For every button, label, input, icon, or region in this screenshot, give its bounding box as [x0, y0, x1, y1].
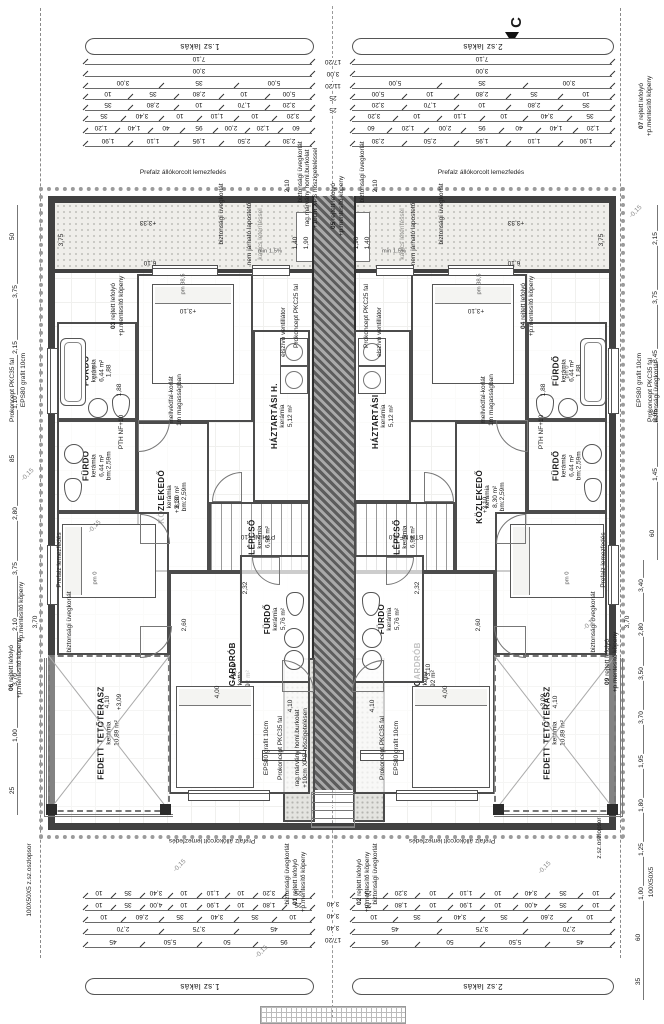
dimension-tick [610, 71, 616, 77]
banner-unit1-top-label: 1.sz lakás [180, 42, 220, 51]
dimension-value: 35 [123, 901, 132, 908]
annotation-6-10: 6,10 [508, 258, 521, 266]
washing-machine [358, 366, 386, 394]
dimension-value: 10 [494, 889, 503, 896]
dimension-line [85, 146, 312, 147]
dimension-tick [310, 116, 316, 122]
window [396, 790, 478, 801]
annotation-3-09: +3,09 [540, 694, 548, 710]
annotation-prefalz-ll-korcolt-lemezfed-: Prefalz állókorcolt lemezfedés [140, 169, 226, 177]
section-marker-c: C [508, 17, 525, 28]
annotation-min-1-5: min 1,5% [382, 249, 406, 256]
terrace-diagonals [494, 655, 616, 812]
dimension-value: 10 [477, 101, 486, 108]
window [188, 790, 270, 801]
dimension-line [352, 947, 612, 948]
note-03: 03 rejtett lefolyó +p.mentesítő köpeny [110, 276, 126, 337]
dimension-value: 10 [499, 112, 508, 119]
left-dimension-column-value: 3,75 [12, 562, 19, 577]
annotation-2-10: 2,10 [372, 180, 380, 193]
dimension-line [352, 910, 612, 911]
annotation-3-75: 3,75 [598, 234, 606, 247]
dimension-value: 95 [380, 938, 389, 945]
dimension-value: 35 [499, 913, 508, 920]
dimension-value: 3,20 [371, 101, 386, 108]
dimension-value: 2,80 [146, 101, 161, 108]
sink-icon [582, 444, 602, 464]
annotation-2-60: 2,60 [181, 619, 189, 632]
left-dimension-column-value: 1,00 [12, 728, 19, 743]
dimension-tick [310, 94, 316, 100]
annotation-1-90: 1,90 [303, 237, 311, 250]
annotation-2-32: 2,32 [242, 582, 250, 595]
dimension-value: 40 [161, 124, 170, 131]
bed [412, 686, 490, 788]
bed [432, 284, 514, 384]
annotation-prokoncept-pkc25-fal: Prokoncept PKC25 fal [363, 284, 371, 348]
dimension-center-value: 25 [328, 106, 337, 113]
dimension-value: 10 [494, 901, 503, 908]
dimension-value: 1,20 [400, 124, 415, 131]
dimension-value: 2,60 [134, 913, 149, 920]
dimension-value: 35 [175, 913, 184, 920]
pavement-strip [260, 1006, 406, 1024]
dimension-line [85, 88, 312, 89]
dimension-value: 35 [194, 79, 203, 86]
dimension-value: 45 [109, 938, 118, 945]
dimension-value: 3,40 [523, 889, 538, 896]
dimension-center-value: 17/20 [324, 58, 342, 65]
annotation-z-sz-oszlopsor: z.sz.oszlopsor [596, 817, 604, 858]
dimension-value: 95 [477, 124, 486, 131]
dimension-value: 3,40 [210, 913, 225, 920]
annotation-pm-38-5: pm 38,5 [477, 274, 484, 295]
banner-unit1-bottom-label: 1.sz lakás [180, 982, 220, 991]
dimension-value: 1,70 [237, 101, 252, 108]
dimension-value: 35 [148, 90, 157, 97]
dimension-value: 3,40 [149, 889, 164, 896]
note-09: 09 rejtett lefolyó +p.mentesítő köpeny [604, 632, 620, 693]
annotation-3-70: 3,70 [32, 616, 40, 629]
dimension-line [352, 76, 612, 77]
annotation-rag-m-rv-ny-homl-burkolat-10: rag.márvány homl.burkolat +10cm XPS hősz… [294, 708, 310, 788]
terrace-diagonals [48, 655, 170, 812]
dimension-value: 7,10 [191, 55, 206, 62]
sink-icon [88, 398, 108, 418]
dimension-value: 10 [288, 913, 297, 920]
annotation-pth-nf-10: PTH NF+10 [538, 415, 546, 450]
washing-machine [280, 366, 308, 394]
banner-unit2-bottom: 2.sz lakás [352, 978, 614, 995]
dimension-value: 3,20 [282, 101, 297, 108]
sink-icon [558, 398, 578, 418]
room-label: FÜRDŐkerámia6,44 m²bm:2,59m [551, 451, 583, 481]
dimension-value: 5,50 [507, 938, 522, 945]
annotation-eps80-grafit-10cm: EPS80 grafit 10cm [20, 353, 28, 407]
dimension-value: 35 [412, 913, 421, 920]
window [47, 348, 58, 414]
right-dimension-column-b-value: 35 [635, 977, 642, 986]
right-dimension-column-b-value: 2,80 [638, 622, 645, 637]
annotation-biztons-gi-vegkorl-t: biztonsági üvegkorlát [284, 843, 292, 904]
annotation-6-10: 6,10 [144, 258, 157, 266]
dimension-value: 10 [95, 901, 104, 908]
annotation-nem-j-rhat-lapostet: nem járható lapostető [246, 203, 254, 266]
dimension-value: 1,90 [458, 901, 473, 908]
dimension-value: 10 [429, 889, 438, 896]
dimension-value: 10 [175, 112, 184, 119]
annotation-biztons-gi-vegkorl-t: biztonsági üvegkorlát [653, 361, 661, 422]
dimension-tick [310, 929, 316, 935]
dimension-value: 2,30 [371, 137, 386, 144]
dimension-value: 10 [586, 913, 595, 920]
dimension-value: 2,80 [191, 90, 206, 97]
dimension-value: 35 [529, 90, 538, 97]
dimension-value: 2,00 [438, 124, 453, 131]
right-dimension-column-b-value: 1,95 [638, 754, 645, 769]
annotation-100x50x5-z-sz-oszlopsor: 100X50X5 z.sz.oszlopsor [26, 843, 34, 916]
room-label: FÜRDŐkerámia6,44 m²bm:2,59m [81, 451, 113, 481]
annotation-prokoncept-pkc35-fal: Prokoncept PKC35 fal [277, 716, 285, 780]
dimension-value: 1,90 [100, 137, 115, 144]
dimension-tick [610, 917, 616, 923]
annotation-eps80-grafit-10cm: EPS80 grafit 10cm [636, 353, 644, 407]
dimension-line [85, 922, 312, 923]
dimension-value: 10 [180, 901, 189, 908]
dimension-center-value: 3,00 [326, 70, 341, 77]
annotation-pm-0: pm 0 [93, 366, 100, 379]
dimension-value: 1,20 [256, 124, 271, 131]
dimension-value: 35 [477, 79, 486, 86]
annotation-3-70: 3,70 [624, 616, 632, 629]
dimension-value: 10 [251, 112, 260, 119]
note-number: 05 [330, 220, 337, 229]
banner-unit2-top-label: 2.sz lakás [463, 42, 503, 51]
dimension-tick [610, 94, 616, 100]
annotation-biztons-gi-vegkorl-t: biztonsági üvegkorlát [297, 141, 305, 202]
annotation-prokoncept-pkc25-fal: Prokoncept PKC25 fal [293, 284, 301, 348]
note-number: 02 [356, 896, 363, 905]
dimension-value: 3,40 [540, 112, 555, 119]
right-dimension-column-b-value: 3,70 [638, 710, 645, 725]
left-dimension-column-value: 25 [9, 786, 16, 795]
dimension-line [85, 947, 312, 948]
annotation-pm-0: pm 0 [93, 572, 100, 585]
dimension-value: 1,95 [191, 137, 206, 144]
note-07: 07 rejtett lefolyó +p.mentesítő köpeny [638, 76, 654, 137]
dimension-value: 95 [279, 938, 288, 945]
annotation-elsz-v-ventill-tor: elszívó ventillátor [376, 307, 384, 357]
dimension-line [85, 934, 312, 935]
bathtub [60, 338, 86, 406]
dimension-value: 1,10 [205, 889, 220, 896]
dimension-tick [310, 905, 316, 911]
note-number: 01 [292, 896, 299, 905]
note-04: 04 rejtett lefolyó +p.mentesítő köpeny [520, 276, 536, 337]
dimension-value: 45 [575, 938, 584, 945]
annotation-4-00: 4,00 [214, 686, 222, 699]
window [376, 265, 414, 276]
dimension-line [352, 88, 612, 89]
dimension-line [352, 110, 612, 111]
dimension-center-value: 25 [328, 94, 337, 101]
dimension-value: 60 [291, 124, 300, 131]
annotation-prefalz-lemezfed-s: Prefalz lemezfedés [56, 532, 64, 587]
dimension-line [352, 121, 612, 122]
right-dimension-column-a-value: 60 [649, 529, 656, 538]
annotation-1-40: 1,40 [292, 237, 300, 250]
dimension-value: 2,80 [527, 101, 542, 108]
note-number: 03 [110, 320, 117, 329]
annotation-mellv-dfal-korl-t-1m-magass-: mellvédfal-korlát 1m magasságban [480, 374, 496, 426]
party-wall [312, 196, 356, 790]
annotation-3-33: +3,33 [140, 218, 156, 226]
dimension-value: 3,75 [191, 925, 206, 932]
dimension-value: 35 [559, 889, 568, 896]
window [608, 545, 619, 605]
dimension-value: 10 [236, 889, 245, 896]
floor-plan-drawing: C 1.sz lakás2.sz lakás1.sz lakás2.sz lak… [0, 0, 664, 1024]
left-dimension-column-value: 85 [9, 453, 16, 462]
dimension-value: 2,60 [540, 913, 555, 920]
dimension-value: 5,00 [371, 90, 386, 97]
window [608, 348, 619, 414]
dimension-tick [310, 128, 316, 134]
dimension-value: 10 [591, 889, 600, 896]
annotation-eps80-grafit-10cm: EPS80 grafit 10cm [393, 721, 401, 775]
note-number: 06 [8, 682, 15, 691]
annotation-biztons-gi-vegkorl-t: biztonsági üvegkorlát [66, 591, 74, 652]
annotation-0-15: -0,15 [172, 858, 188, 874]
dimension-value: 10 [236, 901, 245, 908]
dimension-value: 60 [366, 124, 375, 131]
dimension-value: 2,50 [237, 137, 252, 144]
dimension-tick [310, 141, 316, 147]
annotation-prokoncept-pkc35-fal: Prokoncept PKC35 fal [9, 358, 17, 422]
dimension-line [352, 922, 612, 923]
dimension-value: 2,70 [116, 925, 131, 932]
left-dimension-column-value: 2,80 [12, 506, 19, 521]
annotation-3-10: +3,10 [231, 664, 239, 680]
dimension-tick [310, 71, 316, 77]
dimension-value: 10 [412, 112, 421, 119]
dimension-tick [610, 128, 616, 134]
left-dimension-column-value: 50 [9, 232, 16, 241]
annotation-prefalz-lemezfed-s: Prefalz lemezfedés [600, 532, 608, 587]
column [607, 804, 618, 815]
dimension-line [85, 99, 312, 100]
annotation-pm-38-5: pm 38,5 [181, 274, 188, 295]
dimension-value: 3,20 [393, 889, 408, 896]
dimension-center-value: 11/20 [324, 82, 342, 89]
note-06: 06 rejtett lefolyó +p.mentesítő köpeny [8, 638, 24, 699]
annotation-4-10: 4,10 [369, 700, 377, 713]
dimension-value: 1,10 [458, 889, 473, 896]
annotation-rag-m-rv-ny-homl-burkolat-10: rag.márvány homl.burkolat +10cm XPS hősz… [304, 148, 320, 229]
dimension-value: 35 [251, 913, 260, 920]
dimension-value: 10 [180, 889, 189, 896]
room-label: FÜRDŐkerámia5,76 m² [377, 604, 401, 634]
dimension-line [85, 910, 312, 911]
dimension-tick [610, 141, 616, 147]
dimension-tick [610, 59, 616, 65]
banner-unit1-bottom: 1.sz lakás [85, 978, 314, 995]
dimension-value: 35 [123, 889, 132, 896]
dimension-value: 45 [391, 925, 400, 932]
dimension-tick [310, 83, 316, 89]
annotation-3-75: 3,75 [58, 234, 66, 247]
annotation-1-90: 1,90 [353, 237, 361, 250]
dimension-value: 5,50 [163, 938, 178, 945]
room-label: FÜRDŐkerámia5,76 m² [263, 604, 287, 634]
dimension-tick [310, 917, 316, 923]
dimension-center-value: 3,40 [326, 912, 341, 919]
dimension-tick [610, 942, 616, 948]
dimension-tick [310, 105, 316, 111]
annotation-pm-0: pm 0 [565, 572, 572, 585]
dimension-value: 3,00 [116, 79, 131, 86]
annotation-3-09: +3,09 [116, 694, 124, 710]
dimension-value: 3,00 [561, 79, 576, 86]
dimension-value: 35 [103, 101, 112, 108]
annotation-1-40: 1,40 [364, 237, 372, 250]
annotation-4-00: 4,00 [442, 686, 450, 699]
dimension-line [85, 898, 312, 899]
dimension-value: 4,00 [523, 901, 538, 908]
dimension-line [352, 898, 612, 899]
annotation-100x50x5: 100X50X5 [648, 867, 656, 897]
dimension-value: 1,40 [126, 124, 141, 131]
dimension-value: 1,10 [210, 112, 225, 119]
dimension-value: 5,00 [282, 90, 297, 97]
dimension-line [352, 64, 612, 65]
entry-steps [311, 792, 355, 828]
dimension-value: 3,40 [453, 913, 468, 920]
banner-unit2-bottom-label: 2.sz lakás [463, 982, 503, 991]
dimension-value: 1,90 [205, 901, 220, 908]
dimension-value: 1,95 [475, 137, 490, 144]
dimension-tick [610, 83, 616, 89]
annotation-biztons-gi-vegkorl-t: biztonsági üvegkorlát [218, 183, 226, 244]
dimension-value: 1,20 [94, 124, 109, 131]
right-dimension-column-a-value: 3,75 [652, 290, 659, 305]
bathtub [580, 338, 606, 406]
dimension-value: 1,70 [423, 101, 438, 108]
left-dimension-column-value: 3,75 [12, 284, 19, 299]
annotation-prefalz-ll-korcolt-lemezfed-: Prefalz állókorcolt lemezfedés [169, 836, 255, 844]
right-dimension-column-b-value: 1,25 [638, 842, 645, 857]
annotation-0-15: -0,15 [628, 204, 644, 220]
right-dimension-column-b-value: 1,80 [638, 798, 645, 813]
bed [176, 686, 254, 788]
annotation-3-10: +3,10 [482, 497, 490, 513]
dimension-line [85, 76, 312, 77]
note-number: 09 [604, 676, 611, 685]
right-dimension-column-b-value: 60 [635, 933, 642, 942]
note-02: 02 rejtett lefolyó +p.mentesítő köpeny [356, 852, 372, 913]
note-05: 05 rejtett lefolyó +p.mentesítő köpeny [330, 176, 346, 237]
annotation-3-33: +3,33 [508, 218, 524, 226]
dimension-value: 2,50 [423, 137, 438, 144]
dimension-value: 5,00 [267, 79, 282, 86]
dimension-value: 10 [369, 913, 378, 920]
column [493, 804, 504, 815]
right-dimension-column-b-value: 3,50 [638, 666, 645, 681]
dimension-tick [310, 942, 316, 948]
annotation-nem-j-rhat-lapostet: nem járható lapostető [410, 203, 418, 266]
dimension-value: 35 [99, 112, 108, 119]
dimension-value: 50 [222, 938, 231, 945]
dimension-value: 50 [445, 938, 454, 945]
note-01: 01 rejtett lefolyó +p.mentesítő köpeny [292, 852, 308, 913]
left-dimension-column-value: 2,15 [12, 340, 19, 355]
dimension-line [85, 64, 312, 65]
dimension-value: 10 [591, 901, 600, 908]
dimension-value: 3,20 [262, 889, 277, 896]
dimension-value: 3,40 [134, 112, 149, 119]
dimension-value: 5,00 [388, 79, 403, 86]
annotation-2-10: 2,10 [284, 180, 292, 193]
annotation-3-10: +3,10 [180, 306, 196, 314]
right-dimension-column-a-value: 1,45 [652, 467, 659, 482]
dimension-value: 10 [99, 913, 108, 920]
note-number: 04 [520, 320, 527, 329]
annotation-prokoncept-pkc35-fal: Prokoncept PKC35 fal [379, 716, 387, 780]
dimension-center-value: 3,40 [326, 900, 341, 907]
banner-unit1-top: 1.sz lakás [85, 38, 314, 55]
annotation-3-10: +3,10 [468, 306, 484, 314]
annotation-3-10: +3,10 [174, 497, 182, 513]
dimension-value: 1,80 [393, 901, 408, 908]
annotation-2-60: 2,60 [475, 619, 483, 632]
annotation-1-88: 1,88 [540, 384, 548, 397]
annotation-4-10: 4,10 [552, 696, 560, 709]
dimension-tick [610, 116, 616, 122]
annotation-pm-0: pm 0 [565, 366, 572, 379]
sink-icon [362, 628, 382, 648]
annotation-prefalz-ll-korcolt-lemezfed-: Prefalz állókorcolt lemezfedés [409, 836, 495, 844]
annotation-prefalz-ll-korcolt-lemezfed-: Prefalz állókorcolt lemezfedés [438, 169, 524, 177]
dimension-value: 2,70 [561, 925, 576, 932]
dimension-center-value: 17/20 [324, 936, 342, 943]
dimension-value: 1,40 [549, 124, 564, 131]
dimension-value: 3,75 [475, 925, 490, 932]
dimension-tick [610, 929, 616, 935]
dimension-value: 1,10 [146, 137, 161, 144]
annotation-bth-nf-10: BTH NF+10 [389, 532, 424, 540]
dimension-line [352, 934, 612, 935]
annotation-min-1-5: min 1,5% [258, 249, 282, 256]
dimension-value: 1,20 [586, 124, 601, 131]
dimension-tick [610, 905, 616, 911]
dimension-value: 3,00 [191, 67, 206, 74]
dimension-tick [610, 893, 616, 899]
dimension-line [352, 146, 612, 147]
note-number: 07 [638, 120, 645, 129]
dimension-center-value: 3,40 [326, 924, 341, 931]
dimension-value: 35 [586, 112, 595, 119]
bed [152, 284, 234, 384]
dimension-value: 10 [581, 90, 590, 97]
dimension-value: 2,30 [282, 137, 297, 144]
dimension-tick [610, 105, 616, 111]
dimension-value: 1,10 [527, 137, 542, 144]
sink-icon [284, 628, 304, 648]
annotation-pth-nf-10: PTH NF+10 [118, 415, 126, 450]
annotation-1-88: 1,88 [116, 384, 124, 397]
dimension-value: 7,10 [475, 55, 490, 62]
annotation-0-15: -0,15 [20, 467, 36, 483]
